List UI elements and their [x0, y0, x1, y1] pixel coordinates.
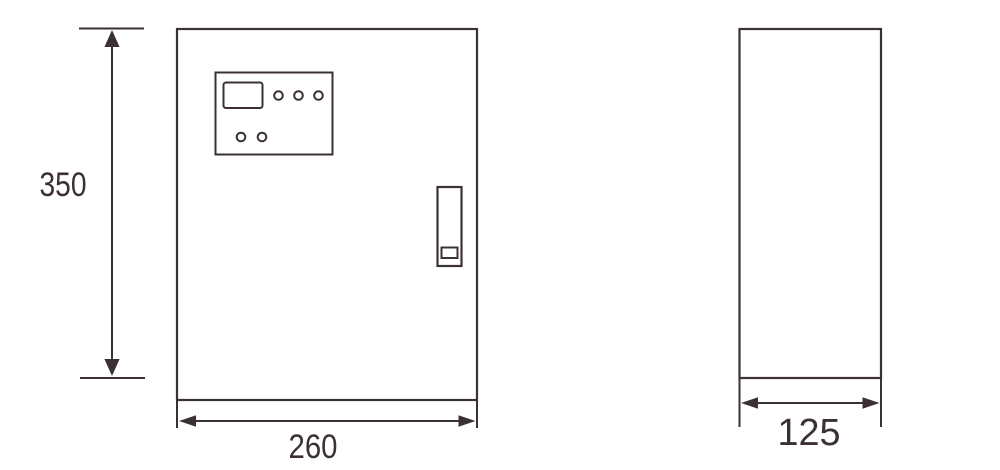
control-panel — [216, 73, 333, 155]
indicator-light-3 — [314, 91, 323, 100]
side-view — [740, 29, 882, 427]
panel-button-2 — [258, 133, 267, 142]
indicator-light-1 — [274, 91, 283, 100]
arrowhead-down-icon — [104, 359, 119, 376]
cabinet-side-outline — [740, 29, 882, 378]
panel-button-1 — [237, 133, 246, 142]
width-dimension: 260 — [179, 415, 476, 466]
front-view — [177, 29, 477, 428]
depth-dimension: 125 — [741, 397, 880, 454]
height-dimension: 350 — [40, 29, 146, 379]
arrowhead-left-icon — [179, 415, 196, 427]
cabinet-dimension-drawing: 350 260 125 — [0, 0, 1000, 470]
arrowhead-left-icon — [741, 397, 758, 409]
arrowhead-right-icon — [459, 415, 476, 427]
cabinet-front-outline — [177, 29, 477, 400]
display-window — [224, 83, 263, 109]
width-dimension-label: 260 — [289, 428, 338, 466]
height-dimension-label: 350 — [40, 166, 87, 204]
depth-dimension-label: 125 — [778, 412, 841, 454]
indicator-light-2 — [294, 91, 303, 100]
arrowhead-right-icon — [863, 397, 880, 409]
technical-drawing-page: 350 260 125 — [0, 0, 1000, 470]
arrowhead-up-icon — [104, 30, 119, 47]
handle-keyhole — [442, 248, 458, 259]
